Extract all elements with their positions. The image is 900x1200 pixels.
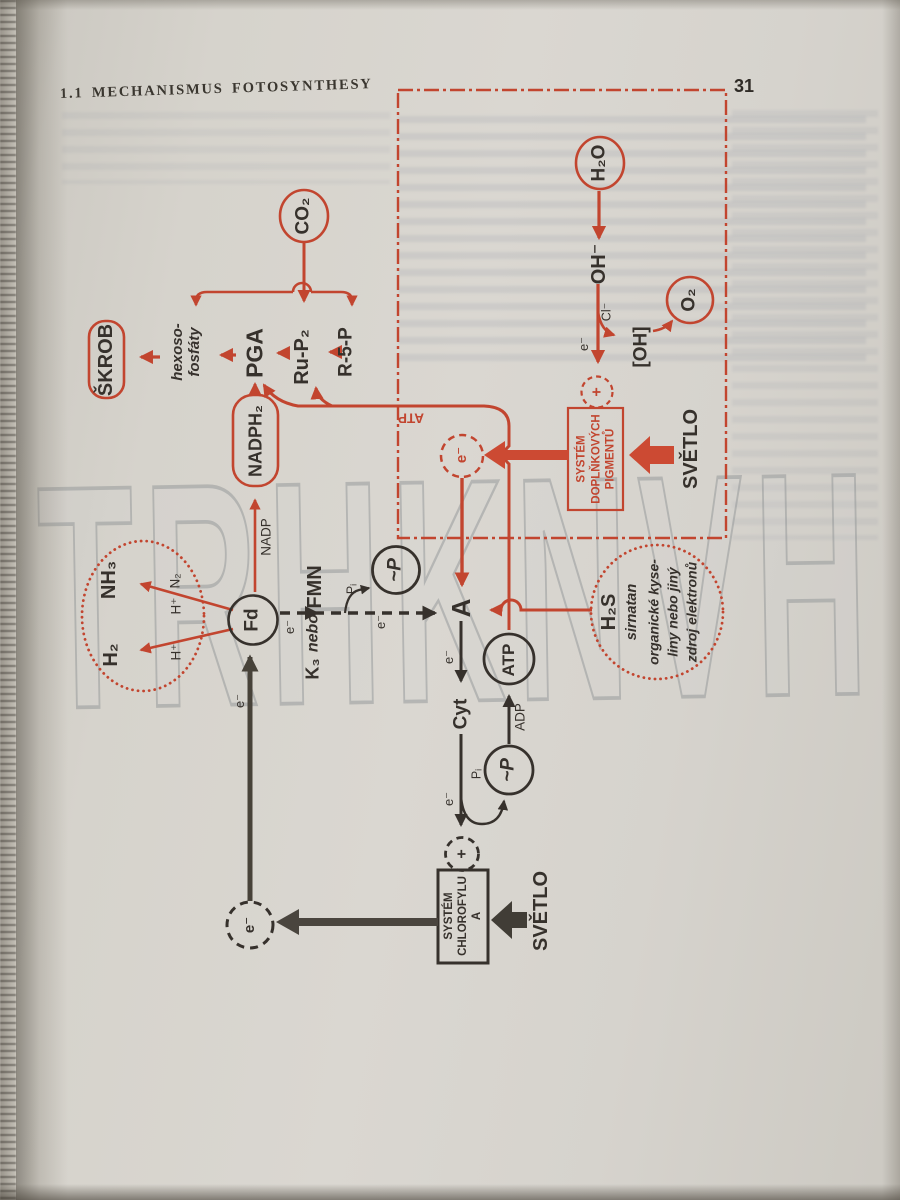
light-arrow-red: [629, 436, 674, 474]
chlorophyll-system-label: SYSTÉM CHLOROFYLU A: [442, 876, 484, 956]
nadp-label: NADP: [260, 518, 275, 556]
k3-label: K₃: [303, 658, 322, 679]
page-top-shadow: [0, 0, 900, 10]
pigments-to-electron-arrow: [484, 441, 569, 469]
n2-label: N₂: [169, 574, 184, 589]
chlorophyll-to-electron-arrow: [276, 909, 438, 935]
cl-minus-label: Cl⁻: [600, 303, 614, 321]
fmn-label: FMN: [305, 565, 327, 608]
page-right-shadow: [882, 0, 900, 1200]
electron-label-fd1: e⁻: [283, 620, 297, 634]
h2-label: H₂: [101, 643, 123, 666]
acceptor-a-label: A: [447, 599, 475, 618]
atp-line-label: ATP: [398, 410, 424, 425]
electron-label-red-circle: e⁻: [454, 447, 470, 463]
cyt-label: Cyt: [452, 699, 473, 730]
pi-label-lower: Pᵢ: [470, 769, 484, 779]
pigment-system-label: SYSTÉM DOPLŇKOVÝCH PIGMENTŮ: [574, 414, 618, 503]
electron-label-fd2: e⁻: [374, 615, 388, 629]
adp-label: ADP: [514, 703, 529, 731]
h-plus-label-2: H⁺: [170, 644, 185, 661]
nebo-label: nebo: [304, 614, 321, 652]
co2-label: CO₂: [294, 198, 315, 235]
pi-label-upper: Pᵢ: [345, 584, 359, 594]
atp-circle-label: ATP: [500, 644, 518, 677]
ru-p2-label: Ru-P₂: [292, 329, 314, 385]
page-bottom-shadow: [0, 1184, 900, 1200]
nadph2-label: NADPH₂: [246, 405, 265, 477]
fd-label: Fd: [243, 608, 264, 631]
hexoso-label: hexoso- fosfáty: [169, 323, 203, 381]
black-linework: [227, 547, 534, 964]
h-plus-label-1: H⁺: [170, 598, 185, 615]
light-arrow-black: [491, 901, 527, 939]
facing-page-edge: [0, 0, 16, 1200]
r5p-label: R-5-P: [337, 327, 358, 377]
book-gutter-shadow: [16, 0, 68, 1200]
h2s-note-label: organické kyse- liny nebo jiný zdroj ele…: [645, 559, 702, 665]
plus-hole-label-black: +: [453, 849, 470, 858]
electron-label-cyt-plus: e⁻: [442, 792, 456, 806]
electron-label-oh: e⁻: [577, 337, 591, 351]
oh-minus-label: OH⁻: [589, 244, 611, 285]
svetlo-label-top: SVĚTLO: [681, 409, 703, 489]
pga-label: PGA: [243, 328, 268, 378]
phosphate-label-lower: ~P: [499, 758, 520, 782]
oh-radical-label: [OH]: [632, 326, 653, 367]
electron-label-up-line: e⁻: [233, 694, 247, 708]
h2s-label: H₂S: [599, 594, 621, 631]
book-page-photo: TRHKNVH 1.1 MECHANISMUS FOTOSYNTHESY 31: [0, 0, 900, 1200]
skrob-label: ŠKROB: [96, 324, 118, 396]
electron-label-a-cyt: e⁻: [442, 650, 456, 664]
o2-label: O₂: [680, 288, 701, 311]
h2o-label: H₂O: [590, 145, 611, 182]
svetlo-label-bottom: SVĚTLO: [531, 871, 553, 951]
electron-label-black-circle: e⁻: [242, 917, 258, 933]
phosphate-label-upper: ~P: [386, 558, 407, 582]
nh3-label: NH₃: [99, 561, 121, 599]
sirnatan-label: sirnatan: [625, 584, 641, 640]
plus-hole-label: +: [588, 387, 605, 396]
